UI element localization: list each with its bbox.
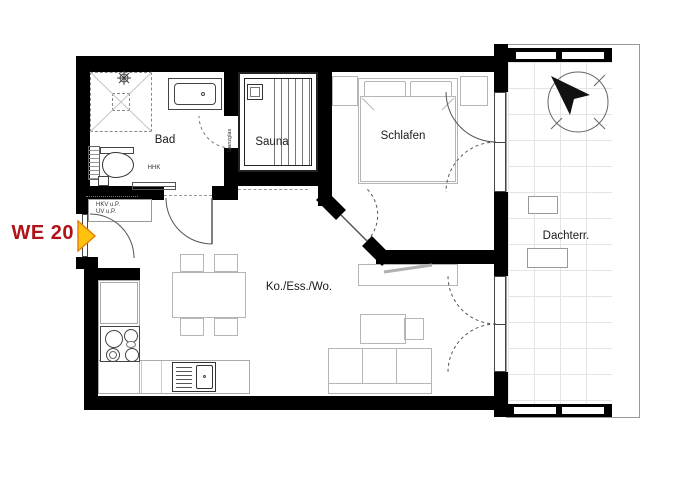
bath-door-arc (166, 198, 212, 244)
kitchen-fridge (100, 282, 138, 324)
kitchen-stove (100, 326, 140, 362)
towel-radiator-label: HHK (134, 165, 174, 172)
sauna-door-label: Ganzglas (227, 112, 236, 152)
dining-chair (214, 318, 238, 336)
railing-glass-panel (516, 52, 556, 59)
wall-terrace-divider-middle (494, 192, 508, 276)
wall-sauna-schlafen (318, 72, 332, 206)
washbasin-drain (201, 92, 205, 96)
wall-sauna-south (224, 172, 332, 186)
bedroom-door (341, 189, 378, 241)
terrace-fixture (528, 196, 558, 214)
bed-pillow-right (410, 81, 452, 97)
unit-label: WE 20 (10, 222, 74, 246)
sauna-benches (274, 79, 311, 165)
stove-burner (125, 348, 139, 362)
stove-burner (105, 330, 123, 348)
wall-kitchen-niche (84, 268, 140, 280)
sauna-heater-inner (250, 87, 260, 97)
hall-threshold (238, 189, 308, 190)
washbasin-bowl (174, 83, 216, 105)
heating-circuit-label: HKV u.P. (96, 202, 151, 209)
toilet (102, 152, 134, 178)
wall-terrace-divider-upper (494, 44, 508, 92)
room-label-wohnen: Ko./Ess./Wo. (249, 281, 349, 293)
ottoman (404, 318, 424, 340)
installation-shaft (88, 146, 100, 180)
terrace-fixture (527, 248, 568, 268)
entrance-door-panel (82, 214, 88, 257)
room-label-sauna: Sauna (242, 136, 302, 148)
room-label-dachterrasse: Dachterr. (526, 230, 606, 242)
terrace-railing-top (508, 48, 612, 62)
dining-table (172, 272, 246, 318)
armchair (360, 314, 406, 344)
bath-door (166, 198, 212, 244)
stove-burner-inner (109, 351, 117, 359)
stove-knob (126, 341, 136, 348)
nightstand-left (332, 76, 358, 106)
bed-pillow-left (364, 81, 406, 97)
sofa (328, 348, 432, 394)
railing-glass-panel (562, 407, 604, 414)
terrace-railing-bottom (508, 404, 612, 417)
sideboard (358, 264, 458, 286)
towel-radiator (132, 182, 176, 190)
wall-schlafen-wohnen (376, 250, 508, 264)
living-terrace-door-swing (448, 276, 496, 372)
railing-glass-panel (562, 52, 604, 59)
room-label-bad: Bad (140, 134, 190, 146)
wall-bottom (84, 396, 508, 410)
room-label-schlafen: Schlafen (363, 130, 443, 142)
wall-left-lower (84, 268, 98, 410)
shower-drain (112, 93, 130, 111)
bath-door-threshold (164, 195, 212, 196)
entrance-threshold (86, 196, 138, 197)
floor-plan: HHK HKV u.P. UV u.P. Ganzglas (0, 0, 700, 500)
sink-drainboard (176, 366, 192, 388)
dining-chair (180, 254, 204, 272)
nightstand-right (460, 76, 488, 106)
connection-box (98, 176, 109, 186)
railing-glass-panel (514, 407, 556, 414)
bedroom-terrace-door (494, 92, 506, 192)
bedroom-door-arc (367, 189, 378, 241)
wall-top (76, 56, 508, 72)
dining-chair (214, 254, 238, 272)
wall-bath-sauna-upper (224, 72, 238, 116)
living-terrace-door (494, 276, 506, 372)
dining-chair (180, 318, 204, 336)
wall-terrace-divider-lower (494, 372, 508, 417)
wall-bath-south-right (212, 186, 238, 200)
sink-drain (203, 375, 206, 378)
heating-distributor-box: HKV u.P. UV u.P. (88, 199, 152, 222)
sub-distribution-label: UV u.P. (96, 209, 151, 216)
